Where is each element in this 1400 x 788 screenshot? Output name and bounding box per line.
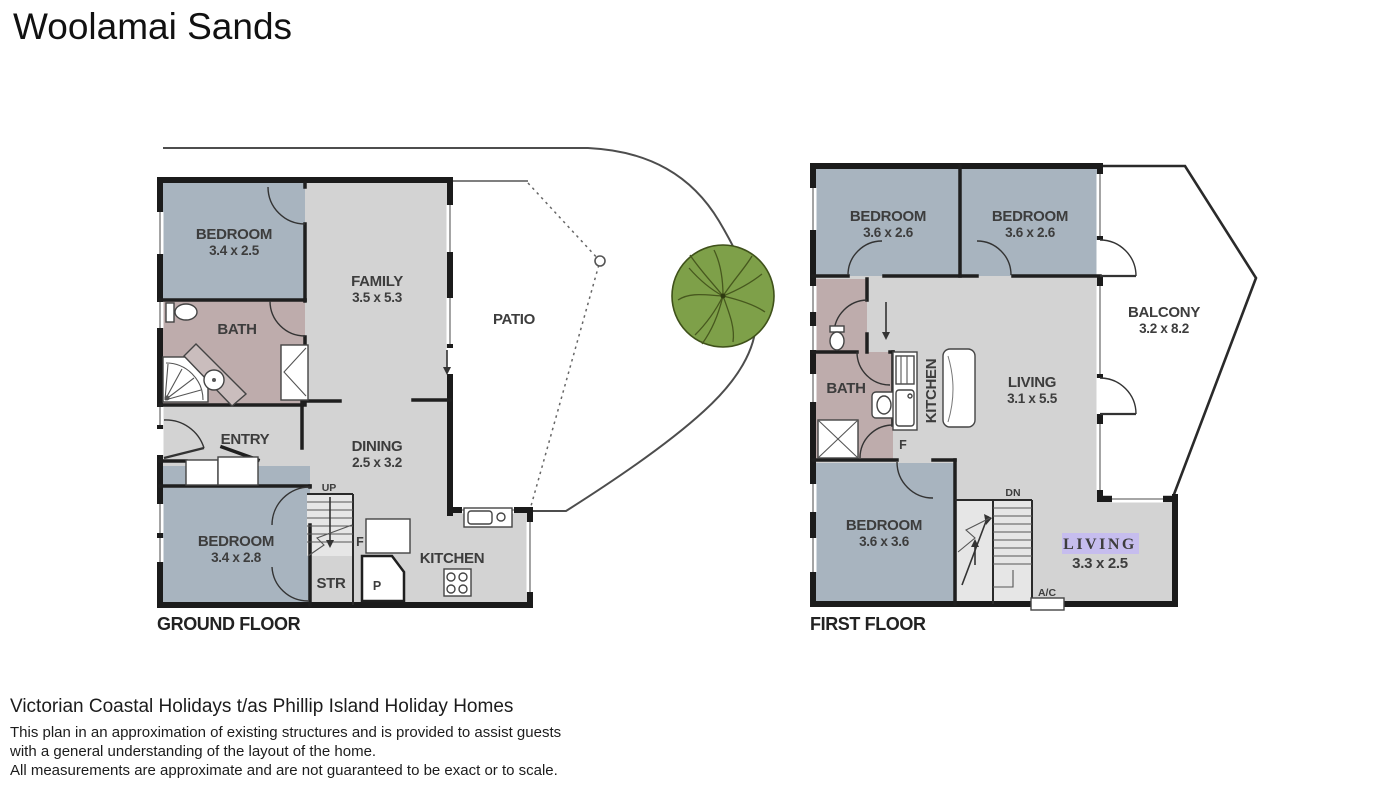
gf-bath-label: BATH bbox=[217, 321, 256, 338]
ff-shower-icon bbox=[818, 420, 858, 458]
gf-pantry-icon bbox=[362, 556, 404, 601]
ground-floor-title: GROUND FLOOR bbox=[157, 614, 301, 634]
ff-bedroom2-label: BEDROOM bbox=[992, 208, 1068, 225]
ff-living-label: LIVING bbox=[1008, 374, 1056, 391]
gf-patio-label: PATIO bbox=[493, 311, 536, 328]
footer-disclaimer-line3: All measurements are approximate and are… bbox=[10, 761, 561, 780]
gf-dining-label: DINING bbox=[352, 438, 403, 455]
ff-ac-unit-icon bbox=[1031, 598, 1064, 610]
gf-up-marker: UP bbox=[322, 482, 337, 494]
gf-kitchen-label: KITCHEN bbox=[420, 550, 485, 567]
gf-fridge-icon bbox=[366, 519, 410, 553]
gf-pantry-marker: P bbox=[373, 579, 381, 593]
ff-living2-dims: 3.3 x 2.5 bbox=[1072, 555, 1128, 572]
gf-family-dims: 3.5 x 5.3 bbox=[352, 290, 403, 305]
first-floor-title: FIRST FLOOR bbox=[810, 614, 926, 634]
gf-entry-label: ENTRY bbox=[221, 431, 270, 448]
first-floor-plan: BEDROOM 3.6 x 2.6 BEDROOM 3.6 x 2.6 BALC… bbox=[810, 166, 1256, 634]
footer-disclaimer-line2: with a general understanding of the layo… bbox=[10, 742, 561, 761]
ff-living2-label: LIVING bbox=[1063, 536, 1137, 553]
gf-family-label: FAMILY bbox=[351, 273, 403, 290]
ff-bath-label: BATH bbox=[826, 380, 865, 397]
ff-balcony-dims: 3.2 x 8.2 bbox=[1139, 321, 1189, 336]
gf-toilet-icon bbox=[166, 303, 197, 322]
ff-balcony-label: BALCONY bbox=[1128, 304, 1200, 321]
gf-bedroom1-label: BEDROOM bbox=[196, 226, 272, 243]
ff-bedroom1-dims: 3.6 x 2.6 bbox=[863, 225, 914, 240]
ff-bedroom1-label: BEDROOM bbox=[850, 208, 926, 225]
ff-ac-marker: A/C bbox=[1038, 587, 1057, 599]
ff-bedroom3-label: BEDROOM bbox=[846, 517, 922, 534]
gf-fridge-marker: F bbox=[356, 535, 364, 549]
gf-stove-icon bbox=[444, 569, 471, 596]
gf-bedroom2-label: BEDROOM bbox=[198, 533, 274, 550]
ground-floor-plan: BEDROOM 3.4 x 2.5 BATH FAMILY 3.5 x 5.3 … bbox=[157, 180, 536, 634]
gf-sink-icon bbox=[464, 508, 512, 527]
gf-storage-label: STR bbox=[316, 575, 346, 592]
ff-fridge-marker: F bbox=[899, 438, 907, 452]
boundary-post-icon bbox=[595, 256, 605, 266]
footer-disclaimer-line1: This plan in an approximation of existin… bbox=[10, 723, 561, 742]
footer: Victorian Coastal Holidays t/as Phillip … bbox=[10, 696, 561, 781]
floorplan-canvas: BEDROOM 3.4 x 2.5 BATH FAMILY 3.5 x 5.3 … bbox=[0, 0, 1400, 788]
gf-bedroom2-dims: 3.4 x 2.8 bbox=[211, 550, 262, 565]
ff-bedroom2-dims: 3.6 x 2.6 bbox=[1005, 225, 1056, 240]
gf-dining-dims: 2.5 x 3.2 bbox=[352, 455, 402, 470]
ff-down-marker: DN bbox=[1005, 487, 1020, 499]
tree-icon bbox=[672, 245, 774, 347]
ff-kitchen-label: KITCHEN bbox=[923, 359, 940, 424]
ff-living-dims: 3.1 x 5.5 bbox=[1007, 391, 1058, 406]
ff-toilet-icon bbox=[830, 326, 844, 350]
ff-island-bench-icon bbox=[943, 349, 975, 427]
ff-kitchen-counter-icon bbox=[893, 352, 917, 430]
ff-bedroom3-dims: 3.6 x 3.6 bbox=[859, 534, 910, 549]
gf-linen-closet-icon bbox=[281, 345, 308, 400]
footer-company: Victorian Coastal Holidays t/as Phillip … bbox=[10, 696, 561, 718]
gf-entry-closet-icon bbox=[186, 457, 258, 485]
gf-bedroom1-dims: 3.4 x 2.5 bbox=[209, 243, 260, 258]
